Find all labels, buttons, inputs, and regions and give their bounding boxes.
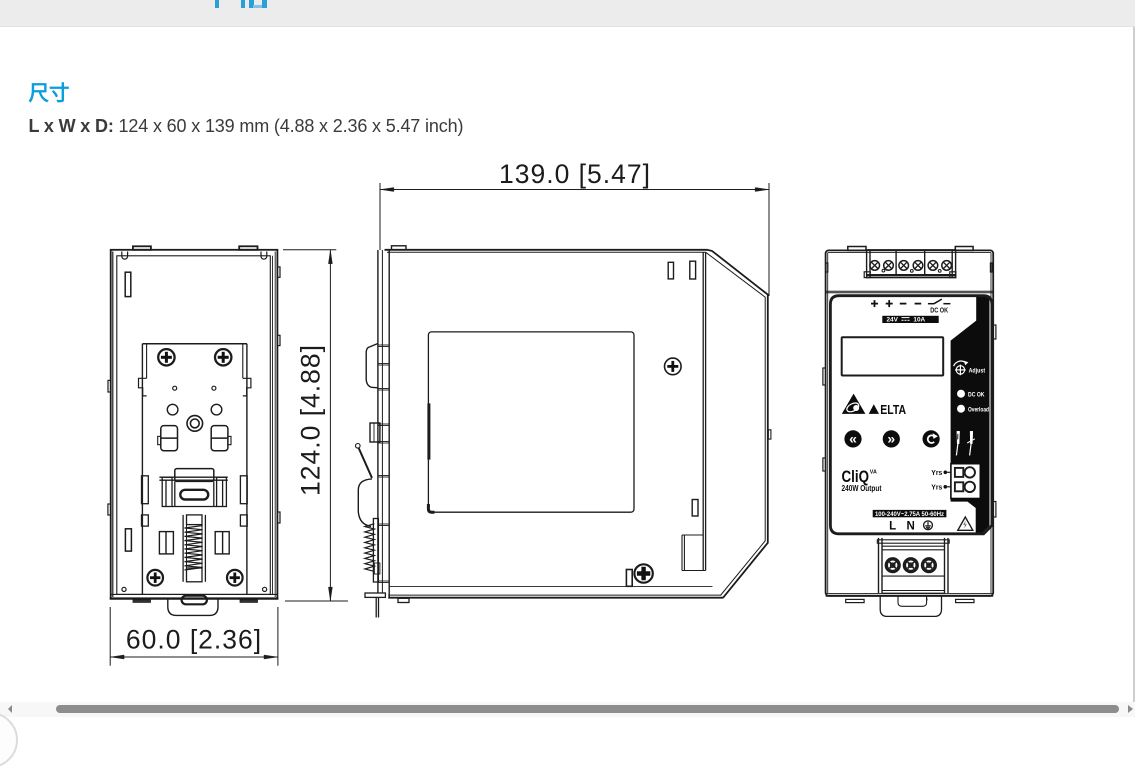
svg-text:Adjust: Adjust	[969, 368, 986, 375]
svg-text:ELTA: ELTA	[880, 402, 906, 417]
svg-text:Overload: Overload	[968, 406, 989, 413]
svg-text:Yrs: Yrs	[931, 483, 942, 492]
svg-text:VA: VA	[870, 470, 877, 476]
svg-text:«: «	[849, 430, 857, 446]
svg-text:10A: 10A	[913, 317, 925, 324]
svg-text:139.0 [5.47]: 139.0 [5.47]	[499, 159, 651, 189]
svg-text:24V: 24V	[887, 317, 899, 324]
svg-text:240W Output: 240W Output	[842, 484, 882, 493]
svg-text:124.0 [4.88]: 124.0 [4.88]	[296, 344, 326, 496]
svg-text:Yrs: Yrs	[931, 468, 942, 477]
svg-text:»: »	[887, 430, 895, 446]
svg-text:L: L	[889, 520, 896, 532]
svg-text:DC OK: DC OK	[930, 307, 948, 314]
svg-text:100-240V~2.75A 50-60Hz: 100-240V~2.75A 50-60Hz	[875, 511, 944, 518]
svg-text:60.0 [2.36]: 60.0 [2.36]	[126, 625, 262, 655]
svg-text:N: N	[906, 520, 914, 532]
svg-text:DC OK: DC OK	[968, 391, 985, 398]
svg-text:CliQ: CliQ	[842, 467, 870, 486]
